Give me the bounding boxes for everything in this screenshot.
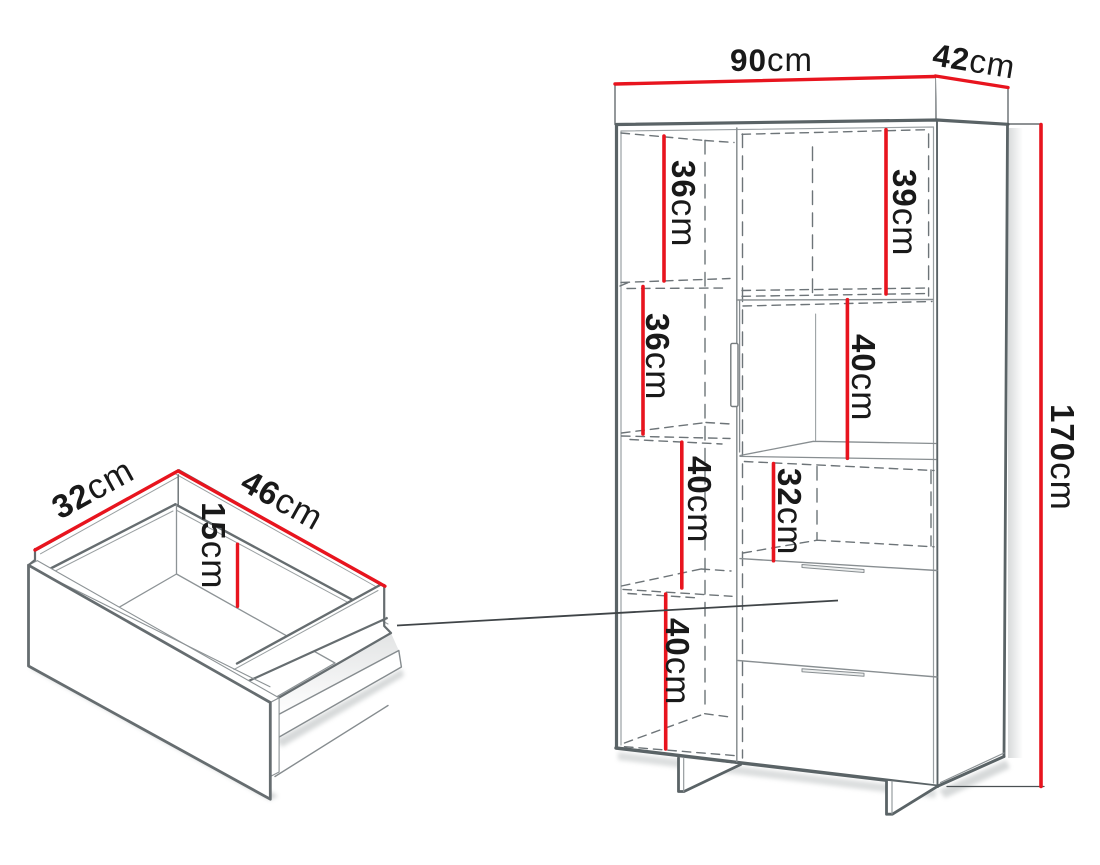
svg-text:40cm: 40cm: [658, 618, 697, 705]
svg-text:40cm: 40cm: [680, 456, 719, 543]
svg-text:36cm: 36cm: [664, 160, 703, 247]
svg-text:170cm: 170cm: [1043, 404, 1082, 511]
svg-text:36cm: 36cm: [638, 313, 677, 400]
svg-text:15cm: 15cm: [194, 502, 233, 589]
svg-text:40cm: 40cm: [844, 334, 883, 421]
svg-text:90cm: 90cm: [730, 41, 813, 78]
svg-text:39cm: 39cm: [885, 169, 924, 256]
svg-text:32cm: 32cm: [770, 468, 809, 555]
